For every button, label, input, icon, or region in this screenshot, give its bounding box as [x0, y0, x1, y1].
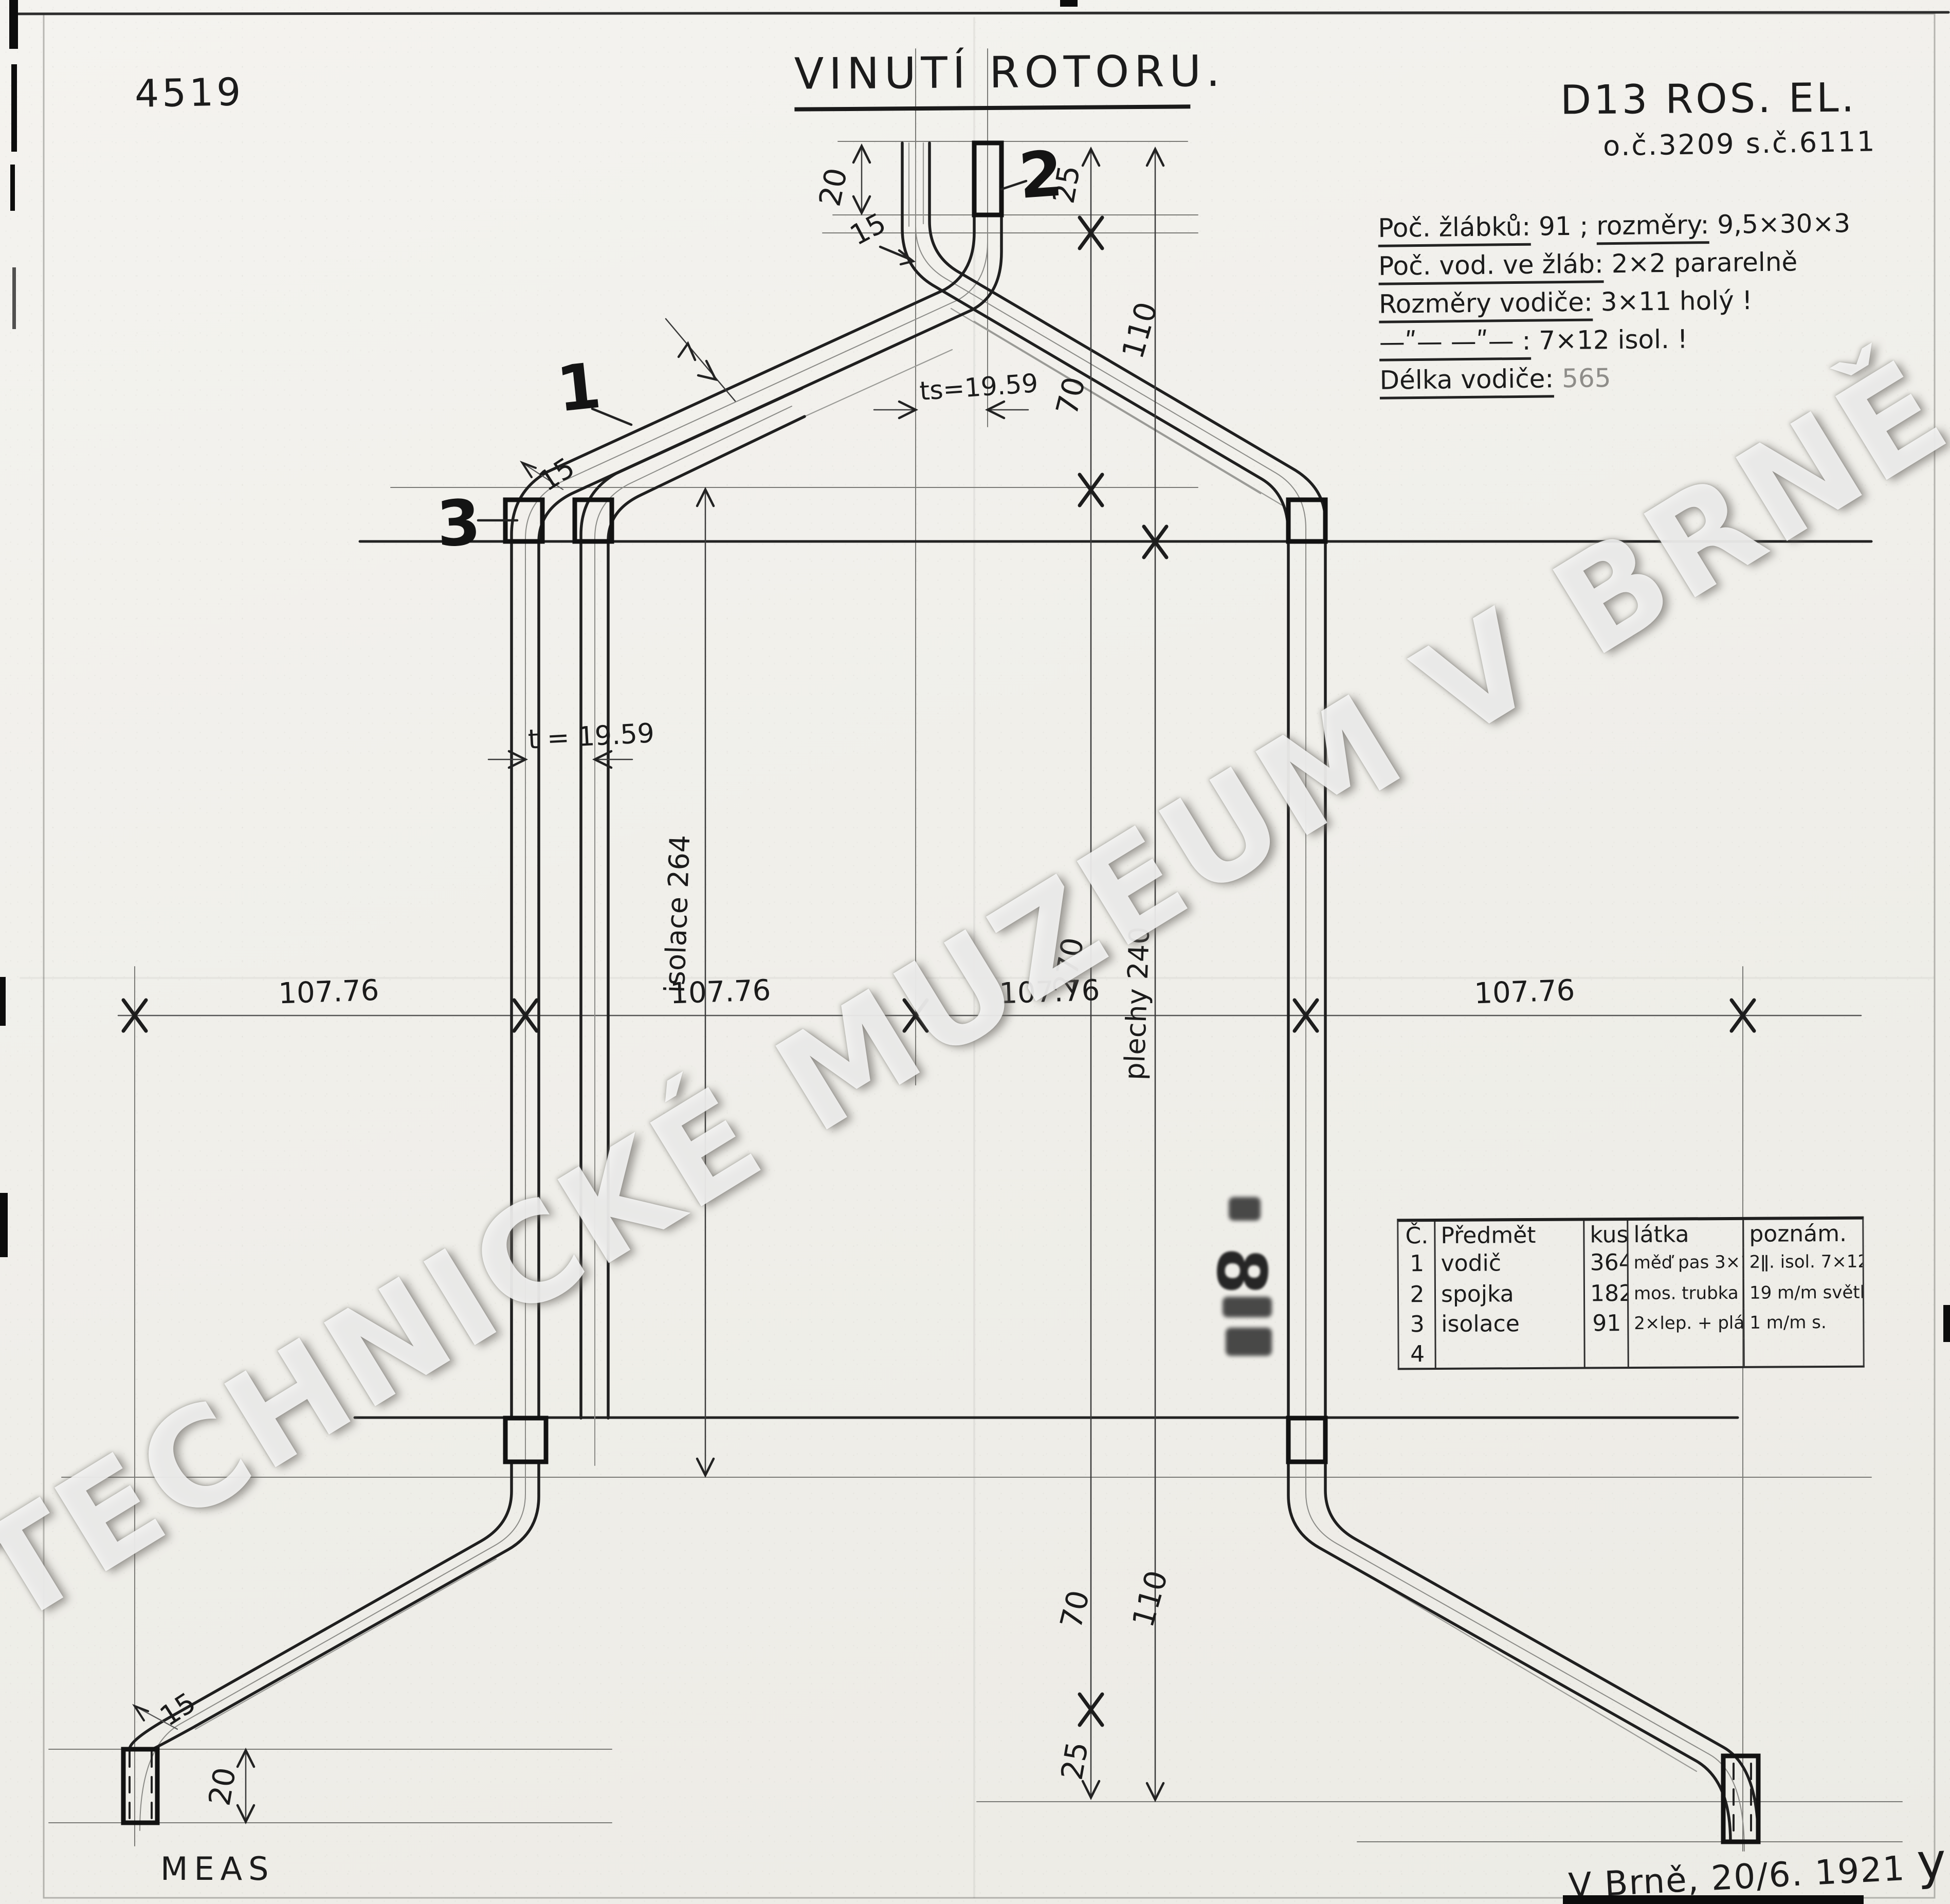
table-row: 2 — [1399, 1280, 1436, 1310]
dim-pitch-apex: ts=19.59 — [919, 368, 1039, 406]
scan-artifact — [0, 977, 6, 1026]
scan-artifact — [11, 64, 17, 152]
radius-leader-arrowheads — [135, 463, 536, 1720]
scanned-technical-drawing: 20 25 110 70 ts=19.59 t = 19.59 15 15 15… — [0, 0, 1950, 1904]
note-line-conductor-length: Délka vodiče: 565 — [1379, 356, 1852, 400]
scan-artifact — [9, 0, 18, 49]
table-header-predmet: Předmět — [1435, 1221, 1584, 1249]
parts-table: Č. Předmět kusů látka poznám. 1 vodič 36… — [1397, 1217, 1865, 1370]
table-cell: mos. trubka — [1629, 1279, 1744, 1309]
table-cell — [1744, 1338, 1863, 1366]
part-callouts: 1 2 3 — [435, 137, 1065, 561]
dim-110-top: 110 — [1115, 298, 1164, 362]
dim-70-top: 70 — [1049, 373, 1092, 419]
note-size-label: Rozměry vodiče: — [1379, 287, 1593, 323]
note-cond-value: 2×2 pararelně — [1603, 247, 1797, 279]
table-row: 4 — [1399, 1340, 1436, 1368]
dim-r15-apex: 15 — [845, 207, 891, 252]
dim-span-2: 107.76 — [669, 974, 771, 1011]
note-slot-size-value: 9,5×30×3 — [1709, 208, 1850, 240]
table-cell: 19 m/m světl. 1 m/m s. — [1744, 1278, 1863, 1309]
callout-2: 2 — [1016, 137, 1065, 213]
note-length-label: Délka vodiče: — [1379, 364, 1554, 400]
table-cell — [1585, 1339, 1629, 1367]
table-cell: isolace — [1436, 1309, 1585, 1340]
note-slot-size-label: rozměry: — [1596, 210, 1709, 245]
stamp-smudge — [1223, 1297, 1272, 1317]
drawing-number: 4519 — [134, 70, 244, 116]
inventory-stamp: 8 — [1200, 1246, 1281, 1296]
project-code: D13 ROS. EL. — [1560, 75, 1857, 123]
table-cell — [1436, 1339, 1585, 1368]
table-cell: vodič — [1436, 1248, 1585, 1280]
table-cell: 182 — [1585, 1279, 1629, 1309]
scan-artifact — [10, 165, 15, 211]
callout-1: 1 — [553, 349, 604, 426]
dim-stub-top: 20 — [812, 165, 854, 209]
note-ditto-value: 7×12 isol. ! — [1530, 324, 1688, 356]
table-cell: 1 m/m s. — [1744, 1308, 1863, 1338]
table-header-kusu: kusů — [1584, 1221, 1628, 1248]
table-header-poznam: poznám. — [1744, 1220, 1862, 1248]
callout-3: 3 — [435, 486, 482, 561]
dim-r15-left: 15 — [533, 451, 580, 497]
table-row: 3 — [1399, 1310, 1436, 1340]
table-cell: spojka — [1436, 1279, 1585, 1310]
stamp-smudge — [1226, 1328, 1272, 1356]
dim-span-4: 107.76 — [1473, 974, 1575, 1011]
note-line-conductors-per-slot: Poč. vod. ve žláb: 2×2 pararelně — [1378, 242, 1851, 285]
note-line-slots: Poč. žlábků: 91 ; rozměry: 9,5×30×3 — [1378, 204, 1850, 247]
scan-artifact — [0, 1193, 8, 1257]
x-tick-marks — [123, 217, 1754, 1725]
scan-artifact — [1563, 1895, 1864, 1904]
dim-70-bottom: 70 — [1053, 1587, 1097, 1632]
table-cell: 2ǁ. isol. 7×12 — [1744, 1247, 1863, 1279]
scan-top-edge — [13, 12, 1948, 14]
stamp-smudge — [1229, 1197, 1261, 1221]
scan-artifact — [1060, 0, 1078, 7]
scan-artifact — [12, 267, 16, 329]
note-line-conductor-size-isolated: —ʺ— —ʺ— : 7×12 isol. ! — [1379, 318, 1851, 361]
note-length-value: 565 — [1554, 363, 1611, 393]
dim-110-bottom: 110 — [1125, 1567, 1175, 1631]
scan-artifact — [1943, 1305, 1950, 1342]
table-header-cislo: Č. — [1398, 1222, 1435, 1249]
note-ditto-label: —ʺ— —ʺ— : — [1379, 326, 1530, 361]
dim-isolace: isolace 264 — [659, 835, 697, 993]
table-cell — [1629, 1338, 1744, 1367]
hidden-conductor-dashed — [130, 1751, 1751, 1839]
dimension-labels: 20 25 110 70 ts=19.59 t = 19.59 15 15 15… — [154, 162, 1575, 1808]
dim-span-1: 107.76 — [278, 974, 379, 1011]
note-size-value: 3×11 holý ! — [1592, 285, 1752, 317]
table-cell: 2×lep. + plát. — [1629, 1309, 1744, 1339]
table-cell: 91 — [1585, 1309, 1629, 1339]
table-cell: měď pas 3×11 — [1629, 1248, 1744, 1279]
table-cell: 364 — [1585, 1248, 1629, 1279]
note-cond-label: Poč. vod. ve žláb: — [1378, 249, 1603, 285]
winding-notes: Poč. žlábků: 91 ; rozměry: 9,5×30×3 Poč.… — [1378, 204, 1852, 400]
note-slots-value: 91 ; — [1530, 211, 1597, 241]
note-slots-label: Poč. žlábků: — [1378, 212, 1530, 247]
signature-initial: y — [1916, 1832, 1949, 1891]
meas-mark: MEAS — [160, 1850, 275, 1888]
dim-gap-bottom: 25 — [1054, 1739, 1095, 1782]
note-line-conductor-size: Rozměry vodiče: 3×11 holý ! — [1379, 280, 1851, 323]
dim-stub-bottom: 20 — [202, 1765, 243, 1808]
dim-plechy-240: plechy 240 — [1118, 926, 1156, 1081]
dim-pitch-slot: t = 19.59 — [527, 718, 655, 755]
page-title: VINUTÍ ROTORU. — [794, 46, 1191, 111]
radius-leaders — [135, 463, 563, 1729]
order-numbers: o.č.3209 s.č.6111 — [1602, 125, 1876, 162]
dim-span-3: 107.76 — [998, 974, 1100, 1011]
table-header-latka: látka — [1628, 1220, 1744, 1248]
table-row: 1 — [1399, 1249, 1436, 1280]
